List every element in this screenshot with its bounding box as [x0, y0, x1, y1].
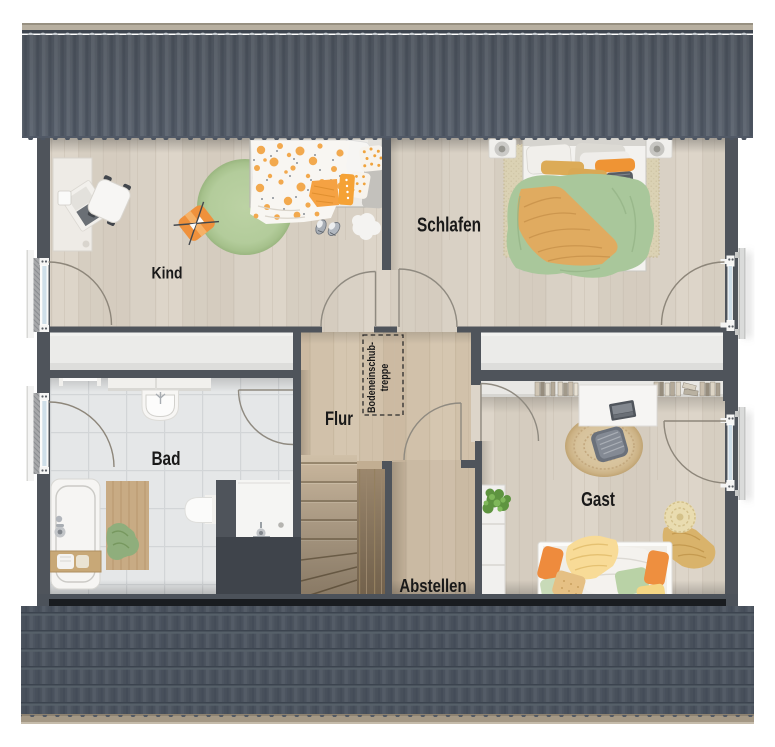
svg-text:Gast: Gast — [581, 488, 615, 511]
svg-text:Bad: Bad — [151, 447, 180, 469]
svg-text:Flur: Flur — [325, 408, 353, 429]
svg-text:Schlafen: Schlafen — [417, 213, 481, 236]
svg-text:treppe: treppe — [379, 363, 391, 391]
svg-text:Abstellen: Abstellen — [399, 576, 466, 597]
svg-text:Bodeneinschub-: Bodeneinschub- — [366, 342, 378, 413]
svg-text:Kind: Kind — [152, 264, 183, 283]
